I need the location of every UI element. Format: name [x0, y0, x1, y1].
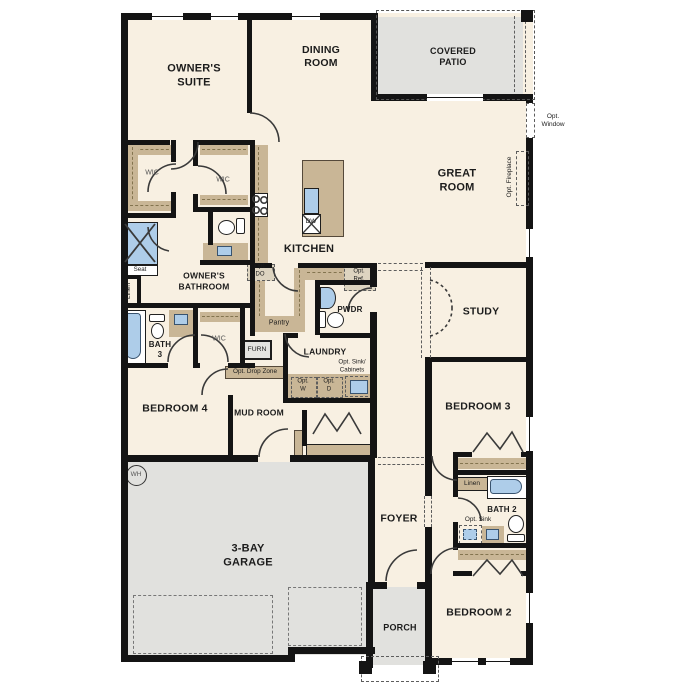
- bath3-toilet-bowl: [151, 323, 164, 339]
- wall-segment: [521, 571, 533, 576]
- label-furnace: FURN: [248, 346, 267, 354]
- wall-segment: [121, 213, 176, 218]
- closet-label-linen: Linen: [125, 283, 133, 299]
- label-opt-washer: Opt. W: [297, 379, 308, 394]
- bath2-toilet-tank: [507, 534, 525, 542]
- wall-segment: [521, 452, 533, 457]
- optional-laundry-sink-outline: [345, 376, 373, 397]
- window: [292, 13, 320, 20]
- optional-fireplace-outline: [516, 151, 529, 206]
- room-label-great-room: GREAT ROOM: [438, 167, 477, 195]
- room-label-bath2: BATH 2: [487, 505, 517, 515]
- window: [526, 593, 533, 623]
- wall-segment: [453, 543, 533, 548]
- room-label-bath3: BATH 3: [149, 340, 171, 360]
- room-label-bedroom2: BEDROOM 2: [446, 606, 511, 619]
- room-label-mud-room: MUD ROOM: [234, 408, 284, 419]
- window: [526, 417, 533, 451]
- wall-segment: [370, 263, 377, 287]
- floor-plan: OWNER'S SUITE DINING ROOM COVERED PATIO …: [0, 0, 687, 687]
- wall-segment: [425, 658, 533, 665]
- room-label-laundry: LAUNDRY: [304, 347, 347, 358]
- wall-segment: [290, 455, 375, 462]
- wall-segment: [121, 13, 128, 662]
- wall-segment: [298, 263, 375, 268]
- opening-foyer-top: [378, 457, 424, 465]
- wall-segment: [457, 452, 472, 457]
- opening-greatroom-hall: [378, 263, 423, 271]
- label-opt-double-oven: Opt. DO: [254, 264, 265, 279]
- wall-segment: [121, 655, 295, 662]
- patio-corner-post: [521, 10, 533, 22]
- optional-bath2-sink: [463, 529, 477, 540]
- wall-segment: [425, 362, 432, 457]
- label-opt-refrigerator: Opt. Ref.: [353, 269, 364, 284]
- patio-column-line: [514, 16, 526, 92]
- optional-window-mark: [526, 103, 535, 138]
- bath3-toilet-tank: [149, 314, 165, 322]
- wall-segment: [196, 207, 252, 212]
- closet-label-wic: WIC: [145, 170, 159, 179]
- wic1-shelf-bottom: [128, 201, 176, 211]
- island-sink: [304, 188, 319, 214]
- wall-segment: [208, 212, 213, 245]
- label-pantry: Pantry: [269, 320, 289, 329]
- label-opt-dryer: Opt. D: [323, 379, 334, 394]
- room-label-bedroom3: BEDROOM 3: [445, 400, 510, 413]
- wic2-shelf-top: [200, 145, 248, 155]
- wall-segment: [193, 308, 198, 368]
- patio-sliding-door: [427, 94, 483, 101]
- wall-segment: [315, 280, 320, 335]
- wall-segment: [121, 455, 258, 462]
- closet-label-linen: Linen: [464, 480, 480, 488]
- owners-toilet-tank: [236, 218, 245, 234]
- optional-bath2-sink-outline: [459, 525, 482, 544]
- wall-segment: [368, 455, 375, 587]
- label-opt-sink-cabinets: Opt. Sink/ Cabinets: [338, 358, 365, 374]
- wall-segment: [453, 571, 472, 576]
- garage-door-bay1: [133, 595, 273, 654]
- wall-segment: [425, 357, 533, 362]
- room-label-kitchen: KITCHEN: [284, 243, 334, 257]
- window: [152, 13, 183, 20]
- bedroom2-closet-shelf: [458, 550, 526, 560]
- wall-segment: [320, 333, 373, 338]
- label-dishwasher: DW: [306, 218, 317, 226]
- wall-segment: [425, 527, 432, 578]
- window: [486, 658, 510, 665]
- owners-sink: [217, 246, 232, 256]
- bath2-toilet-bowl: [508, 515, 524, 533]
- wall-segment: [302, 410, 307, 446]
- wall-segment: [228, 395, 233, 457]
- label-opt-window: Opt. Window: [541, 113, 564, 129]
- room-label-bedroom4: BEDROOM 4: [142, 402, 207, 415]
- wall-segment: [200, 260, 252, 265]
- room-label-dining: DINING ROOM: [302, 44, 340, 70]
- wall-segment: [121, 363, 168, 368]
- pwdr-sink: [320, 287, 336, 309]
- label-opt-fireplace: Opt. Fireplace: [506, 157, 514, 198]
- wic2-shelf-bottom: [200, 195, 248, 205]
- wall-segment: [240, 308, 245, 368]
- bath2-tub-basin: [490, 479, 522, 494]
- bath2-tub: [487, 476, 527, 499]
- room-label-porch: PORCH: [383, 622, 417, 633]
- label-water-heater: WH: [131, 471, 142, 479]
- room-label-owners-suite: OWNER'S SUITE: [167, 62, 221, 90]
- label-opt-drop-zone: Opt. Drop Zone: [233, 368, 277, 376]
- wall-segment: [121, 140, 170, 145]
- wall-segment: [288, 647, 375, 654]
- wic3-shelf: [200, 312, 240, 322]
- wall-segment: [198, 140, 252, 145]
- wall-segment: [425, 457, 432, 496]
- window: [211, 13, 238, 20]
- room-label-study: STUDY: [463, 305, 500, 318]
- opening-foyer-right: [424, 496, 432, 527]
- garage-door-bay2: [288, 587, 362, 646]
- room-label-covered-patio: COVERED PATIO: [430, 46, 476, 69]
- window: [526, 229, 533, 257]
- counter-by-ref: [305, 266, 344, 280]
- closet-label-wic: WIC: [216, 177, 230, 186]
- porch-post: [423, 661, 436, 674]
- study-optional-doors-wall: [421, 267, 431, 358]
- wall-segment: [171, 140, 176, 162]
- bath2-sink: [486, 529, 499, 540]
- wall-segment: [283, 398, 375, 403]
- wall-segment: [283, 333, 288, 403]
- wall-segment: [288, 647, 295, 662]
- owners-toilet-bowl: [218, 220, 235, 235]
- wall-segment: [425, 578, 432, 665]
- room-label-garage: 3-BAY GARAGE: [223, 542, 272, 570]
- wall-segment: [453, 470, 533, 475]
- room-label-pwdr: PWDR: [337, 305, 362, 315]
- wall-segment: [368, 582, 387, 589]
- label-shower-seat: Seat: [134, 266, 147, 274]
- optional-laundry-sink: [350, 380, 368, 394]
- wall-segment: [247, 13, 252, 113]
- wall-segment: [425, 262, 533, 268]
- closet-label-wic: WIC: [212, 336, 226, 345]
- window: [452, 658, 478, 665]
- label-opt-sink: Opt. Sink: [465, 516, 491, 524]
- porch-post: [359, 661, 372, 674]
- room-label-owners-bathroom: OWNER'S BATHROOM: [178, 270, 229, 291]
- bath3-sink: [174, 314, 188, 325]
- wall-segment: [193, 140, 198, 166]
- room-label-foyer: FOYER: [380, 512, 417, 525]
- bedroom3-closet-shelf: [458, 458, 526, 469]
- owners-shower: [123, 222, 158, 265]
- wall-segment: [121, 303, 255, 308]
